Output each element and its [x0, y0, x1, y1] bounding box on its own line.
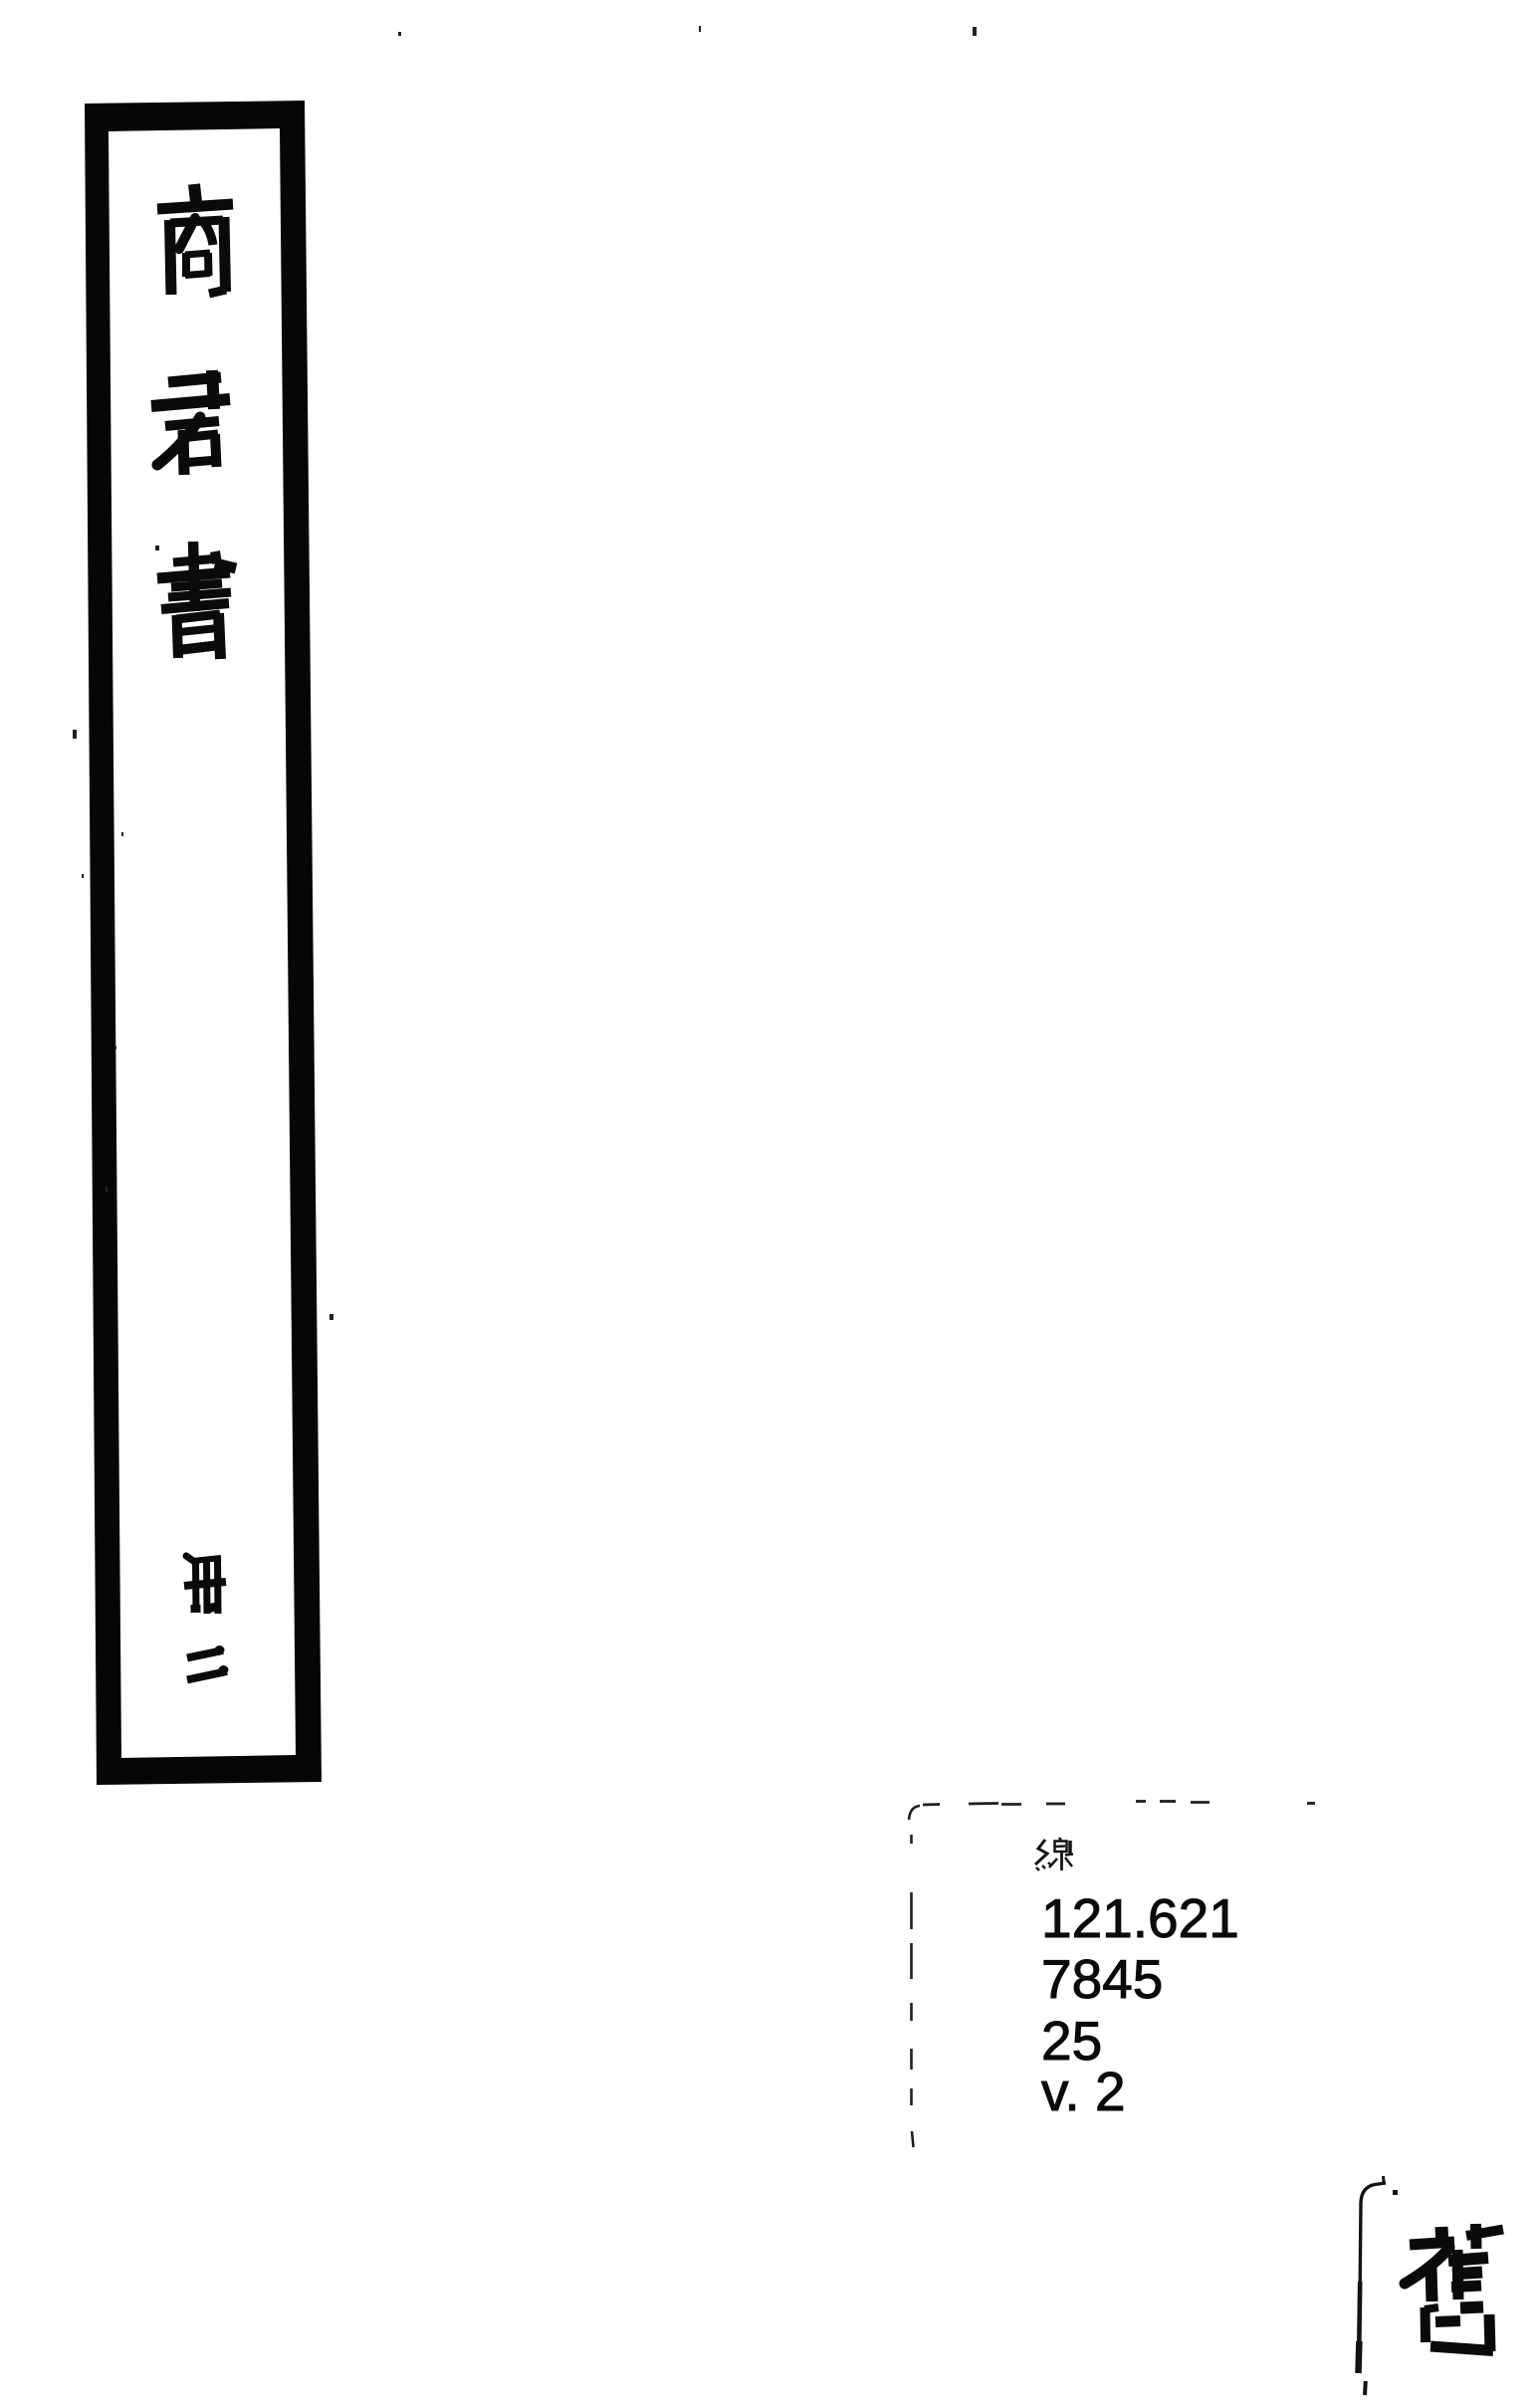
svg-text:v. 2: v. 2	[1041, 2061, 1126, 2122]
svg-text:121.621: 121.621	[1041, 1887, 1239, 1949]
svg-text:7845: 7845	[1041, 1948, 1163, 2010]
